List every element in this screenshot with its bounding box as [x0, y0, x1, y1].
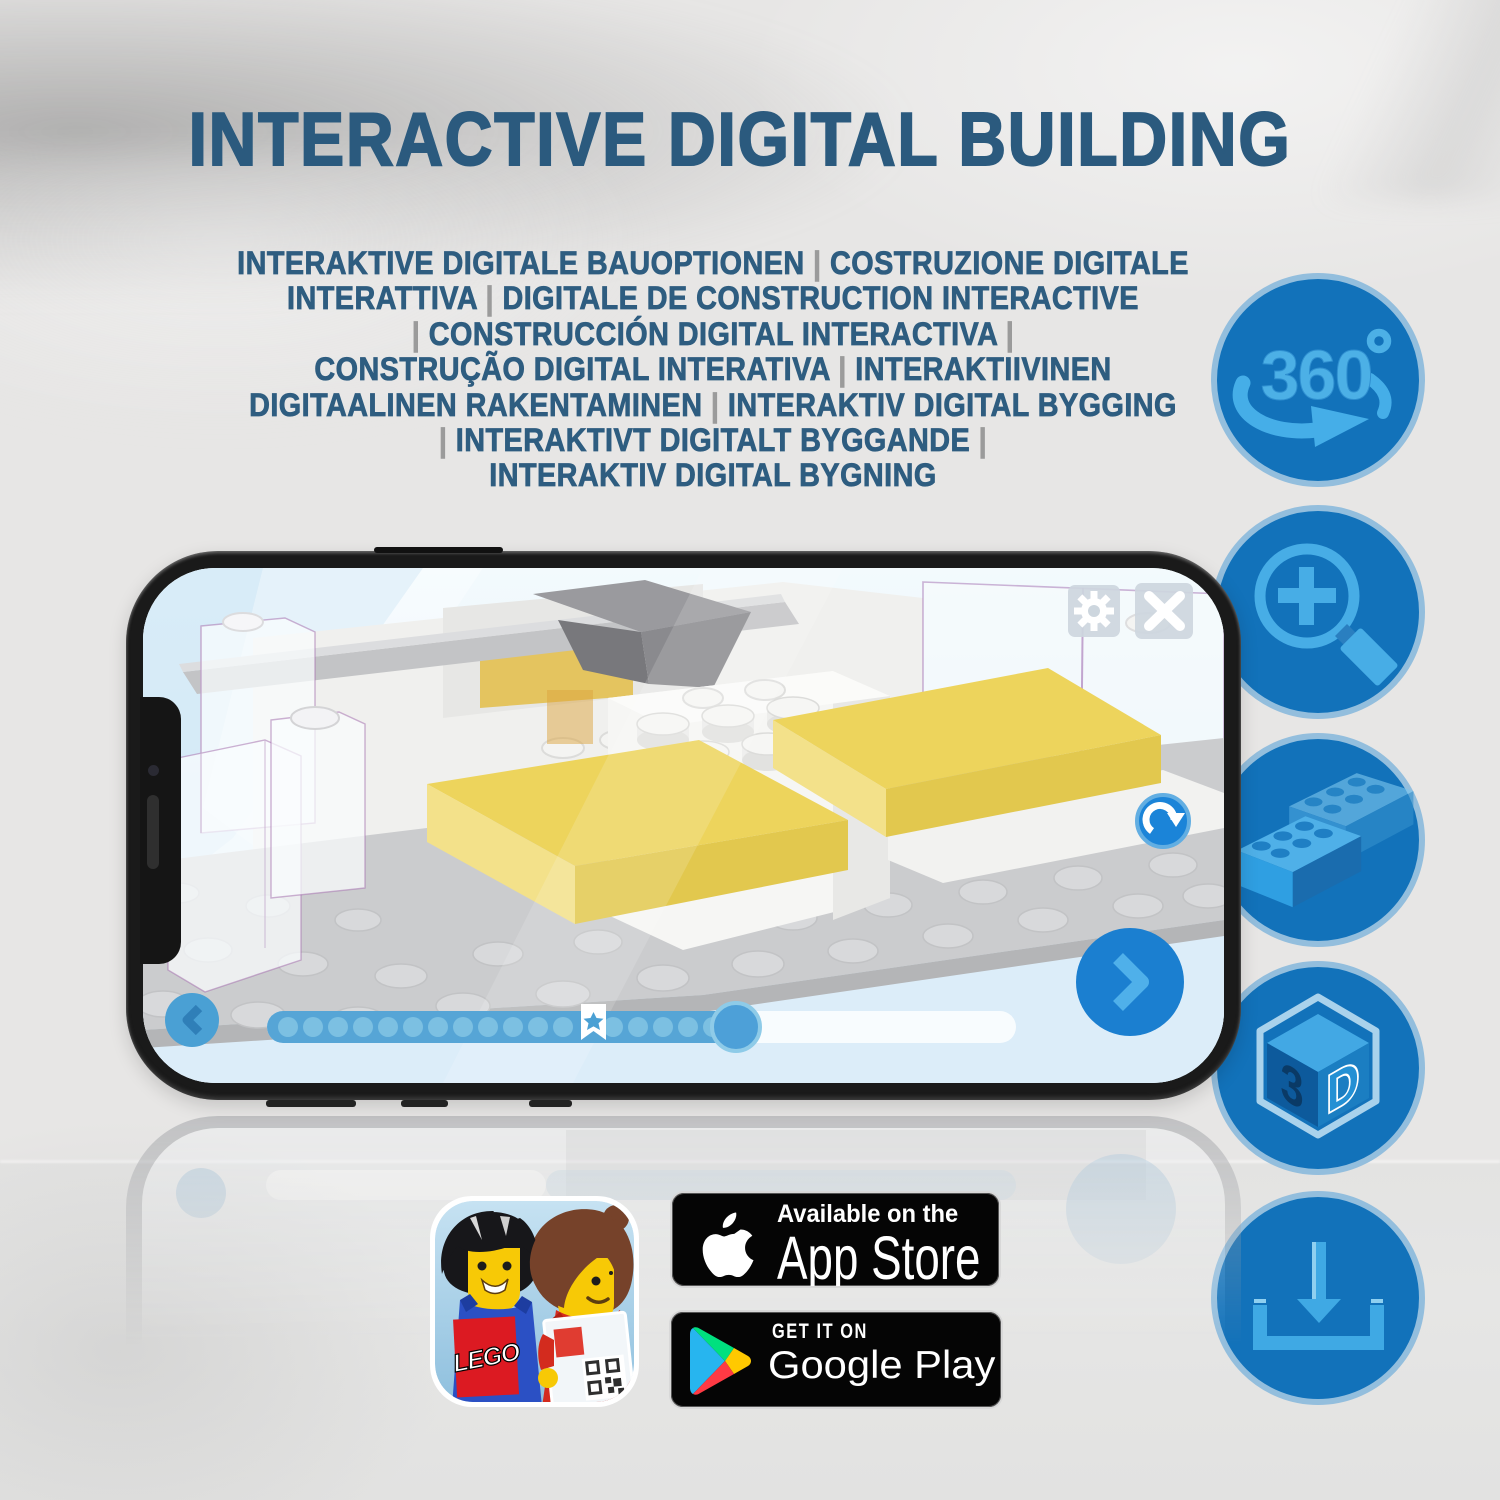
svg-text:360: 360: [1261, 336, 1372, 414]
